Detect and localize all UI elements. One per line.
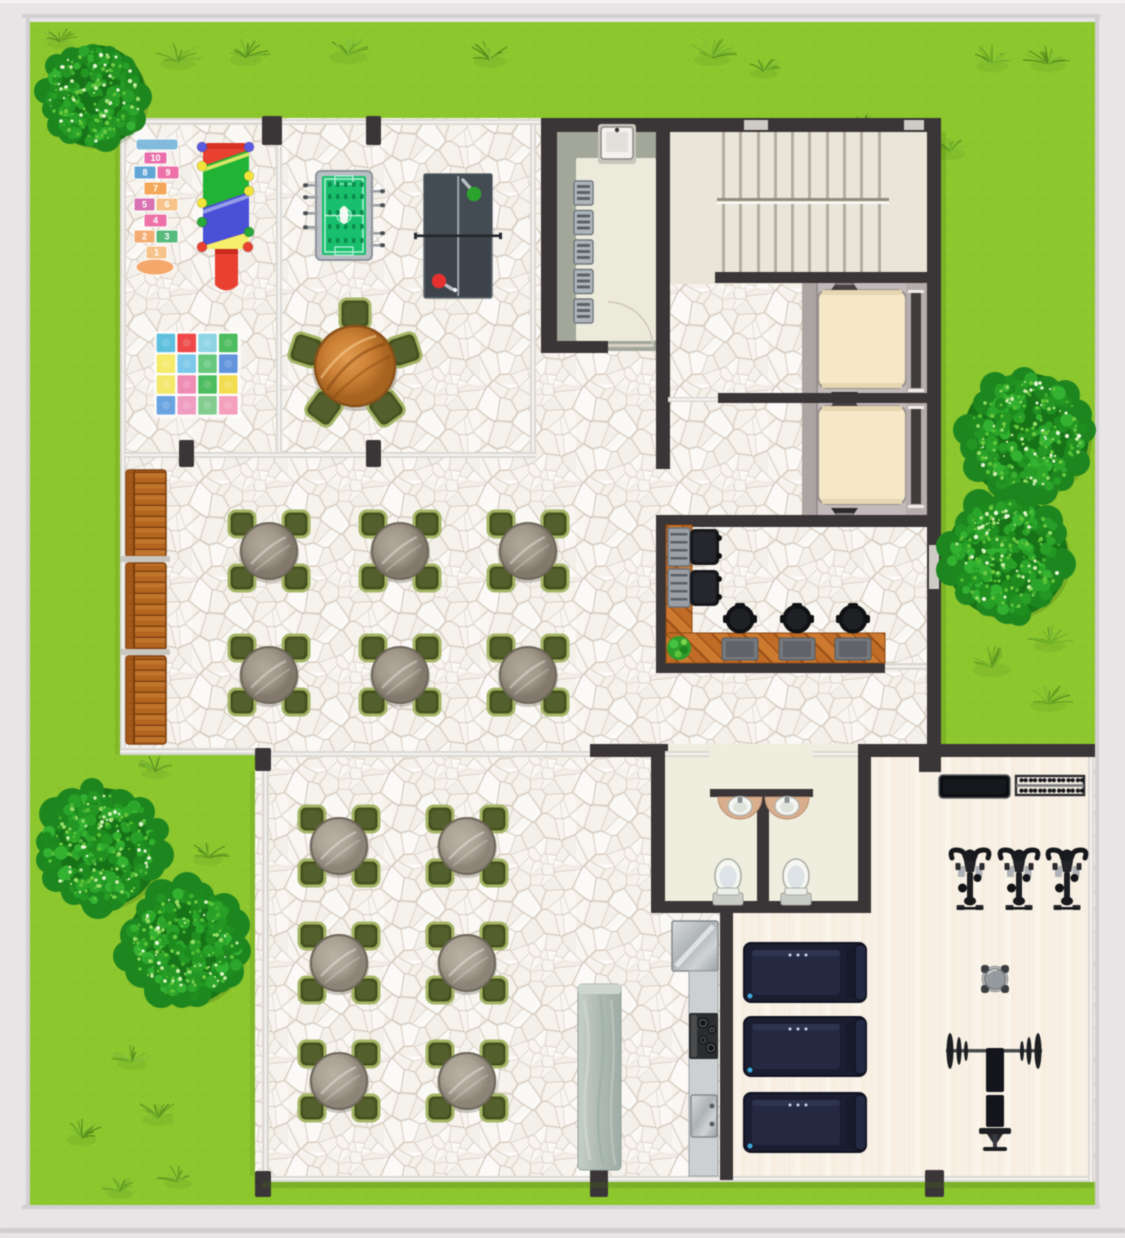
svg-text:4: 4 — [153, 216, 158, 226]
svg-text:8: 8 — [142, 168, 147, 178]
svg-text:1: 1 — [154, 248, 159, 258]
svg-text:5: 5 — [142, 200, 147, 210]
svg-text:9: 9 — [165, 168, 170, 178]
svg-text:7: 7 — [153, 184, 158, 194]
svg-text:10: 10 — [150, 153, 160, 163]
svg-text:6: 6 — [164, 200, 169, 210]
svg-text:2: 2 — [142, 232, 147, 242]
svg-text:3: 3 — [164, 232, 169, 242]
